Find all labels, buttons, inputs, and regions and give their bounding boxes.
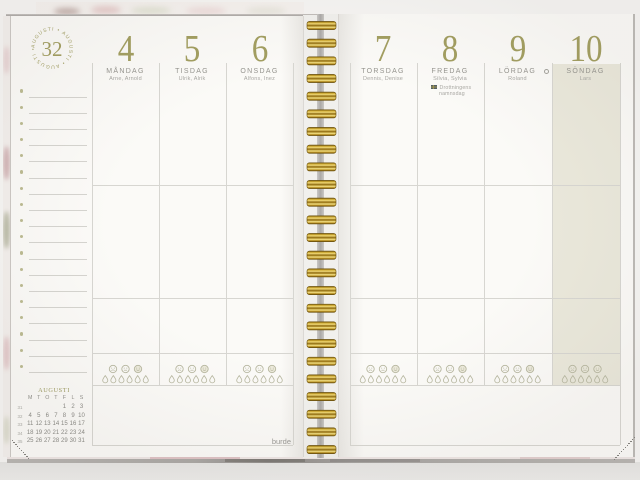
svg-text:32: 32 [42,37,63,61]
